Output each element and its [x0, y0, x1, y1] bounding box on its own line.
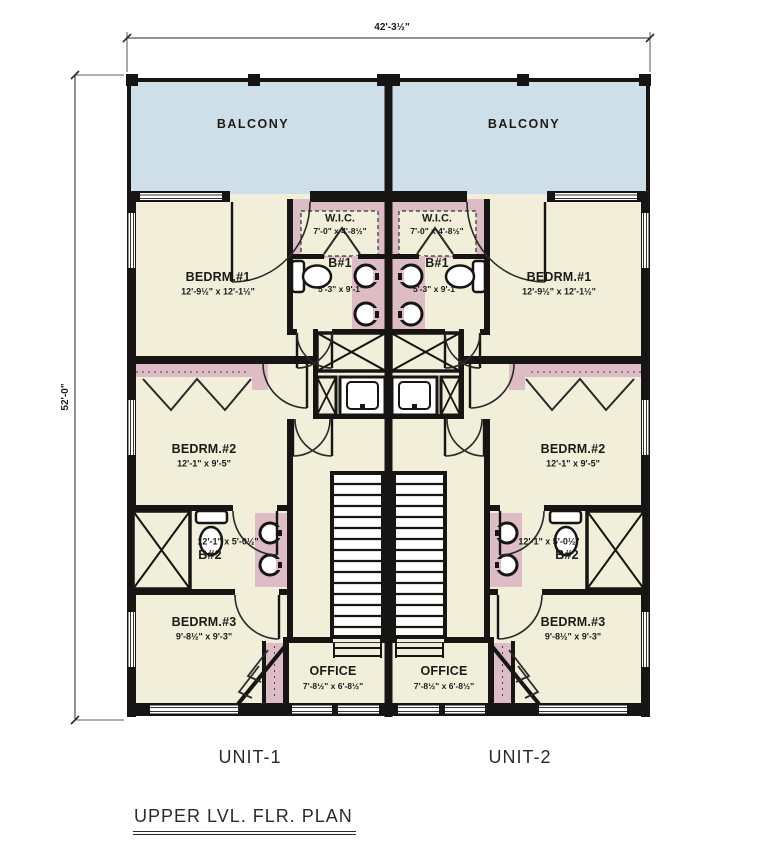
unit-half-plan: [126, 74, 389, 717]
bedrm3-label-unit2: BEDRM.#3: [541, 616, 606, 629]
floor-plan-drawing: [0, 0, 776, 864]
office-label-unit2: OFFICE: [420, 665, 467, 678]
unit-2-label: UNIT-2: [488, 748, 551, 766]
wic-dims-unit1: 7'-0" x 4'-8½": [313, 227, 366, 236]
bedrm3-label-unit1: BEDRM.#3: [172, 616, 237, 629]
office-dims-unit2: 7'-8½" x 6'-8½": [414, 682, 474, 691]
bedrm2-label-unit1: BEDRM.#2: [172, 443, 237, 456]
office-dims-unit1: 7'-8½" x 6'-8½": [303, 682, 363, 691]
bedrm3-dims-unit2: 9'-8½" x 9'-3": [545, 633, 601, 642]
b1-label-unit2: B#1: [425, 257, 449, 270]
vanity-sink-cabinet: [340, 377, 385, 415]
bedrm2-dims-unit2: 12'-1" x 9'-5": [546, 460, 600, 469]
shower-b2: [133, 511, 190, 589]
b2-dims-unit2: 12'-1" x 5'-0½": [518, 538, 579, 547]
b1-label-unit1: B#1: [328, 257, 352, 270]
plan-title: UPPER LVL. FLR. PLAN: [133, 806, 356, 835]
b2-dims-unit1: 12'-1" x 5'-0½": [197, 538, 258, 547]
bedrm3-dims-unit1: 9'-8½" x 9'-3": [176, 633, 232, 642]
unit-2-mirrored-half: [388, 74, 651, 717]
bedrm1-label-unit2: BEDRM.#1: [527, 271, 592, 284]
linen-cabinet: [317, 377, 336, 415]
bathtub: [317, 333, 386, 371]
wic-dims-unit2: 7'-0" x 4'-8½": [410, 227, 463, 236]
bedrm1-label-unit1: BEDRM.#1: [186, 271, 251, 284]
office-label-unit1: OFFICE: [309, 665, 356, 678]
wic-label-unit1: W.I.C.: [325, 214, 355, 225]
overall-height-dimension: 52'-0": [61, 383, 71, 410]
b2-label-unit1: B#2: [198, 549, 222, 562]
wic-label-unit2: W.I.C.: [422, 214, 452, 225]
bedrm2-dims-unit1: 12'-1" x 9'-5": [177, 460, 231, 469]
b1-dims-unit2: 5'-3" x 9'-1": [413, 285, 459, 294]
bedrm1-dims-unit2: 12'-9½" x 12'-1½": [522, 288, 596, 297]
bedrm2-label-unit2: BEDRM.#2: [541, 443, 606, 456]
overall-width-dimension: 42'-3½": [374, 23, 409, 33]
b1-dims-unit1: 5'-3" x 9'-1": [318, 285, 364, 294]
balcony-label-unit2: BALCONY: [488, 118, 560, 131]
unit-1-label: UNIT-1: [218, 748, 281, 766]
staircase: [332, 473, 383, 658]
bedrm1-dims-unit1: 12'-9½" x 12'-1½": [181, 288, 255, 297]
floor-plan-page: 42'-3½" 52'-0" BALCONY BALCONY BEDRM.#1 …: [0, 0, 776, 864]
b2-label-unit2: B#2: [555, 549, 579, 562]
balcony-label-unit1: BALCONY: [217, 118, 289, 131]
